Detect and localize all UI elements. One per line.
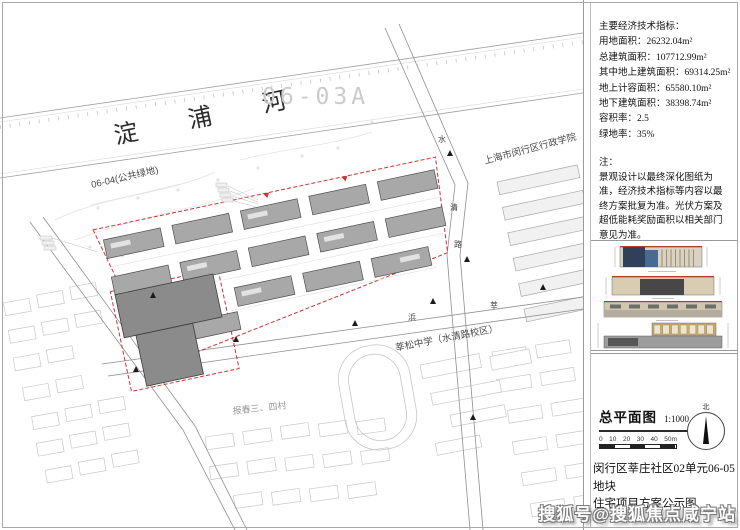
college-label: 上海市闵行区行政学院 <box>483 131 578 167</box>
plan-title-block: 总平面图1:1000 <box>599 406 695 432</box>
indicator-line: 用地面积：26232.04m² <box>599 35 737 50</box>
building-elevation-1 <box>615 246 707 272</box>
plan-title: 总平面图 <box>599 410 657 425</box>
scale-tick-label: 20 <box>623 436 630 443</box>
note-text: 景观设计以最终深化图纸为准，经济技术指标等内容以最终方案批复为准。光伏方案及超低… <box>599 171 731 244</box>
school-buildings <box>420 344 546 455</box>
school-track <box>333 339 422 455</box>
north-compass-icon <box>687 412 725 450</box>
panel-divider-2 <box>591 350 738 351</box>
indicator-line: 其中地上建筑面积：69314.25m² <box>599 66 737 81</box>
building-elevation-4 <box>598 323 728 348</box>
north-needle-icon <box>703 416 709 444</box>
north-label: 北 <box>686 404 726 412</box>
scale-tick-label: 50m <box>664 436 677 443</box>
info-panel: 主要经济技术指标： 用地面积：26232.04m² 总建筑面积：107712.9… <box>583 0 740 530</box>
site-plan-map: 淀 浦 河 06-03A 06-04(公共绿地) 上海市闵行区行政学院 <box>0 0 583 530</box>
scale-bar: 0 10 20 30 40 50m <box>599 436 677 449</box>
indicators-title: 主要经济技术指标： <box>599 20 737 35</box>
note-block: 注： 景观设计以最终深化图纸为准，经济技术指标等内容以最终方案批复为准。光伏方案… <box>599 156 731 244</box>
caption-line-1: 闵行区莘庄社区02单元06-05地块 <box>593 461 739 496</box>
project-site <box>93 157 470 392</box>
school-label: 莘松中学（水清路校区） <box>394 322 499 354</box>
indicator-line: 总建筑面积：107712.99m² <box>599 51 737 66</box>
watermark: 搜狐号@搜狐焦点咸宁站 <box>538 500 736 525</box>
scale-tick-label: 30 <box>637 436 644 443</box>
note-label: 注： <box>599 156 731 171</box>
indicator-line: 地上计容面积：65580.10m² <box>599 82 737 97</box>
building-elevations <box>590 243 736 349</box>
north-arrow: 北 <box>686 404 726 450</box>
college-buildings <box>497 165 583 322</box>
road-south-char-2: 浜 <box>408 312 416 322</box>
scale-tick-label: 40 <box>651 436 658 443</box>
scale-tick-label: 10 <box>609 436 616 443</box>
neighborhood-south <box>205 412 395 517</box>
indicator-line: 地下建筑面积：38398.74m² <box>599 97 737 112</box>
indicator-line: 绿地率：35% <box>599 128 737 143</box>
economic-indicators: 主要经济技术指标： 用地面积：26232.04m² 总建筑面积：107712.9… <box>599 20 737 143</box>
building-elevation-2 <box>606 276 720 299</box>
village-label: 报春三、四村 <box>232 399 287 416</box>
road-east-char-2: 清 <box>450 202 458 212</box>
parcel-0603a-label: 06-03A <box>262 84 369 110</box>
indicator-line: 容积率：2.5 <box>599 112 737 127</box>
building-elevation-3 <box>604 301 722 321</box>
panel-divider-3 <box>591 353 738 354</box>
road-south-char-1: 莘 <box>490 300 498 310</box>
parcel-0604-label: 06-04(公共绿地) <box>90 164 160 191</box>
panel-divider-1 <box>591 240 738 241</box>
scale-bar-graphic <box>599 444 677 449</box>
plan-sheet: 淀 浦 河 06-03A 06-04(公共绿地) 上海市闵行区行政学院 <box>0 0 740 530</box>
scale-bar-labels: 0 10 20 30 40 50m <box>599 436 677 443</box>
scale-tick-label: 0 <box>599 436 603 443</box>
road-east-char-1: 水 <box>438 134 446 144</box>
road-east-char-3: 路 <box>454 239 462 249</box>
